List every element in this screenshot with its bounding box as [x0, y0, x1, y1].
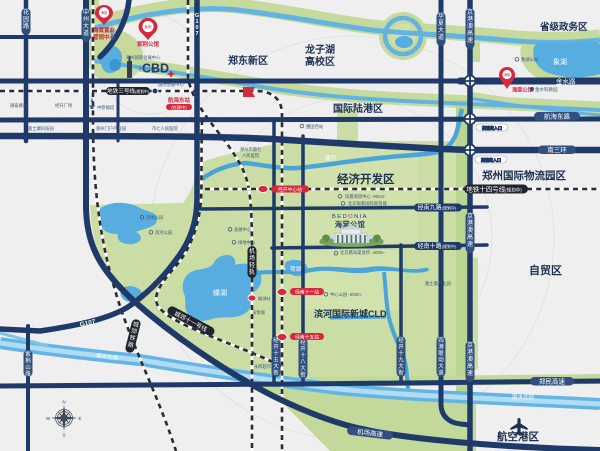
svg-text:经开中心站: 经开中心站 — [278, 186, 302, 193]
svg-text:海棠置业: 海棠置业 — [93, 26, 116, 34]
svg-text:花园路: 花园路 — [23, 8, 29, 30]
svg-text:海棠: 海棠 — [504, 72, 511, 77]
svg-text:E: E — [78, 416, 81, 421]
svg-text:金水科教园: 金水科教园 — [535, 86, 558, 93]
svg-text:郑州市第七: 郑州市第七 — [240, 146, 262, 153]
svg-text:郑州国际会展中心: 郑州国际会展中心 — [126, 54, 161, 61]
svg-text:紫荆: 紫荆 — [145, 24, 152, 29]
svg-text:S: S — [62, 433, 65, 438]
svg-text:海棠公馆: 海棠公馆 — [512, 86, 533, 94]
svg-text:机场轻轨: 机场轻轨 — [249, 247, 255, 276]
svg-text:郑州国际物流园区: 郑州国际物流园区 — [482, 169, 566, 182]
svg-text:(在建中): (在建中) — [171, 104, 187, 111]
svg-text:象湖公园: 象湖公园 — [521, 56, 538, 63]
svg-text:南水北调: 南水北调 — [512, 393, 535, 401]
svg-text:京港澳高速: 京港澳高速 — [467, 8, 473, 44]
svg-text:龙子湖: 龙子湖 — [304, 43, 335, 56]
svg-text:经南十五站: 经南十五站 — [295, 334, 319, 341]
svg-text:蝶湖: 蝶湖 — [213, 288, 227, 297]
svg-text:蝶湖站: 蝶湖站 — [258, 295, 271, 302]
svg-text:经南十一站: 经南十一站 — [295, 289, 319, 296]
svg-text:国际会展中心: 国际会展中心 — [158, 81, 184, 88]
svg-text:省级政务区: 省级政务区 — [539, 21, 588, 33]
svg-text:市七人民医院: 市七人民医院 — [152, 125, 178, 132]
svg-text:G107: G107 — [195, 13, 199, 37]
svg-text:海棠: 海棠 — [101, 10, 108, 15]
svg-text:中心公园 -600m-: 中心公园 -600m- — [330, 291, 363, 298]
svg-text:航海东站: 航海东站 — [168, 96, 191, 104]
svg-text:经济开发区: 经济开发区 — [337, 172, 395, 186]
svg-text:金水路: 金水路 — [556, 76, 576, 85]
svg-text:自贸区: 自贸区 — [529, 263, 562, 277]
svg-text:通泰路站: 通泰路站 — [10, 102, 28, 109]
svg-text:经南九路(规划中): 经南九路(规划中) — [418, 204, 457, 212]
svg-text:北京银基国际商贸城: 北京银基国际商贸城 — [348, 200, 387, 207]
svg-text:N: N — [62, 400, 65, 405]
svg-text:经南十路(规划中): 经南十路(规划中) — [418, 242, 457, 250]
svg-text:潮河: 潮河 — [325, 154, 337, 162]
svg-text:北京路海棠会所 -400m-: 北京路海棠会所 -400m- — [340, 249, 385, 256]
svg-text:郑州门户产业园: 郑州门户产业园 — [96, 125, 126, 132]
svg-text:经开十八大街: 经开十八大街 — [300, 338, 306, 379]
svg-text:滨河公园: 滨河公园 — [155, 229, 172, 236]
svg-text:凤凰商贸中心 -800m-: 凤凰商贸中心 -800m- — [345, 193, 386, 200]
svg-text:人民医院: 人民医院 — [242, 152, 260, 159]
svg-text:滨河国际新城CLD: 滨河国际新城CLD — [314, 308, 387, 319]
svg-text:紫荆山路: 紫荆山路 — [25, 351, 31, 378]
svg-text:华夏大道: 华夏大道 — [438, 12, 444, 41]
svg-text:经开十九大街: 经开十九大街 — [398, 336, 404, 377]
svg-text:永辉超市: 永辉超市 — [254, 363, 272, 370]
svg-text:富士康科技园: 富士康科技园 — [28, 125, 54, 132]
svg-text:经开广场: 经开广场 — [55, 102, 73, 109]
svg-text:湿地公园: 湿地公园 — [146, 214, 163, 221]
svg-text:郑民高速: 郑民高速 — [539, 377, 566, 386]
svg-text:京港澳高速: 京港澳高速 — [467, 341, 473, 377]
svg-text:国际陆港区: 国际陆港区 — [333, 102, 383, 115]
svg-text:高速出入口: 高速出入口 — [481, 156, 501, 162]
svg-text:中州大道: 中州大道 — [83, 8, 89, 37]
svg-text:荷湖: 荷湖 — [290, 265, 302, 273]
svg-text:会展中心: 会展中心 — [234, 226, 252, 233]
svg-text:营销中心: 营销中心 — [93, 33, 116, 41]
svg-text:经开十五大街: 经开十五大街 — [273, 336, 279, 377]
svg-text:海悦城: 海悦城 — [252, 309, 266, 316]
svg-text:富士康产业园: 富士康产业园 — [425, 280, 451, 287]
svg-text:南三环: 南三环 — [547, 145, 567, 154]
svg-text:四港联动大道: 四港联动大道 — [438, 337, 444, 377]
svg-text:中原福塔: 中原福塔 — [97, 104, 115, 111]
svg-text:千玺广场: 千玺广场 — [138, 66, 156, 73]
svg-text:绿地中心: 绿地中心 — [238, 239, 256, 246]
svg-text:郑东新区: 郑东新区 — [228, 54, 268, 67]
svg-text:航海东路: 航海东路 — [544, 112, 571, 121]
svg-text:紫荆公馆: 紫荆公馆 — [137, 40, 160, 48]
svg-text:高校区: 高校区 — [305, 55, 335, 68]
svg-text:高速出入口: 高速出入口 — [482, 124, 502, 130]
svg-text:象湖: 象湖 — [553, 57, 567, 66]
svg-text:京港澳高速: 京港澳高速 — [467, 212, 473, 248]
svg-text:圃田西站: 圃田西站 — [306, 123, 324, 130]
